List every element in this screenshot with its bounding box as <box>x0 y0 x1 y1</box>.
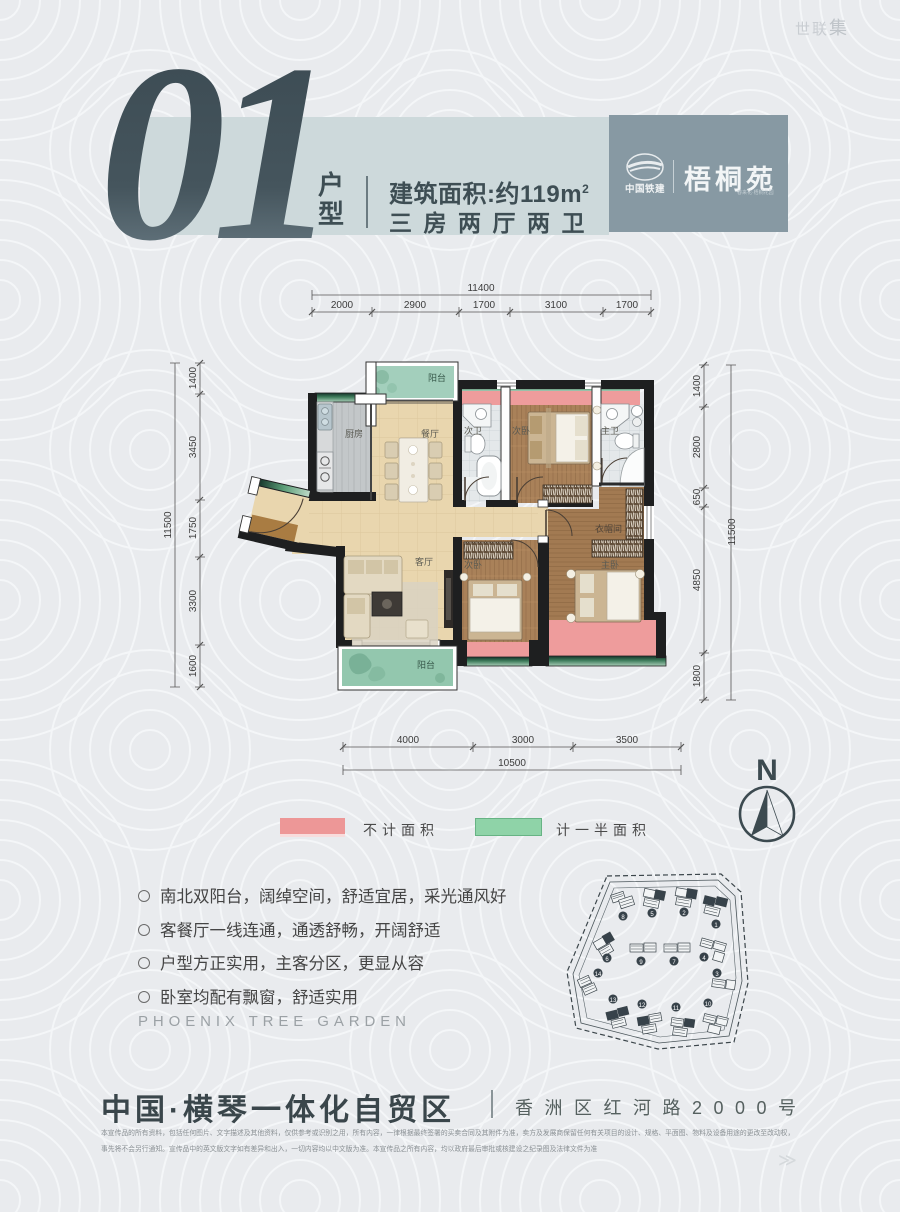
svg-text:1600: 1600 <box>188 654 199 677</box>
svg-text:N: N <box>756 754 778 787</box>
svg-text:2000: 2000 <box>331 300 354 311</box>
svg-text:3450: 3450 <box>188 435 199 458</box>
svg-text:11: 11 <box>673 1006 680 1012</box>
svg-text:10: 10 <box>705 1002 712 1008</box>
svg-text:阳台: 阳台 <box>417 659 435 670</box>
svg-text:衣帽间: 衣帽间 <box>595 523 622 534</box>
svg-text:1700: 1700 <box>616 300 639 311</box>
svg-text:1700: 1700 <box>473 300 496 311</box>
svg-text:4850: 4850 <box>692 568 703 591</box>
svg-text:2800: 2800 <box>692 435 703 458</box>
svg-text:3300: 3300 <box>188 589 199 612</box>
svg-text:次卫: 次卫 <box>464 425 482 436</box>
svg-text:650: 650 <box>692 488 703 505</box>
svg-text:主卫: 主卫 <box>601 425 619 436</box>
svg-text:厨房: 厨房 <box>345 428 363 439</box>
svg-text:13: 13 <box>610 998 617 1004</box>
svg-text:3100: 3100 <box>545 300 568 311</box>
svg-text:1400: 1400 <box>188 366 199 389</box>
svg-text:主卧: 主卧 <box>601 559 619 570</box>
svg-text:阳台: 阳台 <box>428 372 446 383</box>
svg-text:11400: 11400 <box>467 283 495 294</box>
svg-text:2900: 2900 <box>404 300 427 311</box>
svg-text:14: 14 <box>595 972 602 978</box>
svg-text:客厅: 客厅 <box>415 556 433 567</box>
svg-text:12: 12 <box>639 1003 646 1009</box>
svg-text:1750: 1750 <box>188 516 199 539</box>
svg-text:4000: 4000 <box>397 735 420 746</box>
svg-text:11500: 11500 <box>163 511 174 539</box>
svg-text:次卧: 次卧 <box>512 425 530 436</box>
svg-text:3000: 3000 <box>512 735 535 746</box>
svg-text:3500: 3500 <box>616 735 639 746</box>
svg-text:次卧: 次卧 <box>464 559 482 570</box>
svg-text:餐厅: 餐厅 <box>421 428 439 439</box>
svg-text:10500: 10500 <box>498 758 526 769</box>
svg-text:1800: 1800 <box>692 664 703 687</box>
svg-text:1400: 1400 <box>692 374 703 397</box>
svg-text:中国铁建: 中国铁建 <box>625 183 665 195</box>
svg-text:11500: 11500 <box>727 518 738 546</box>
